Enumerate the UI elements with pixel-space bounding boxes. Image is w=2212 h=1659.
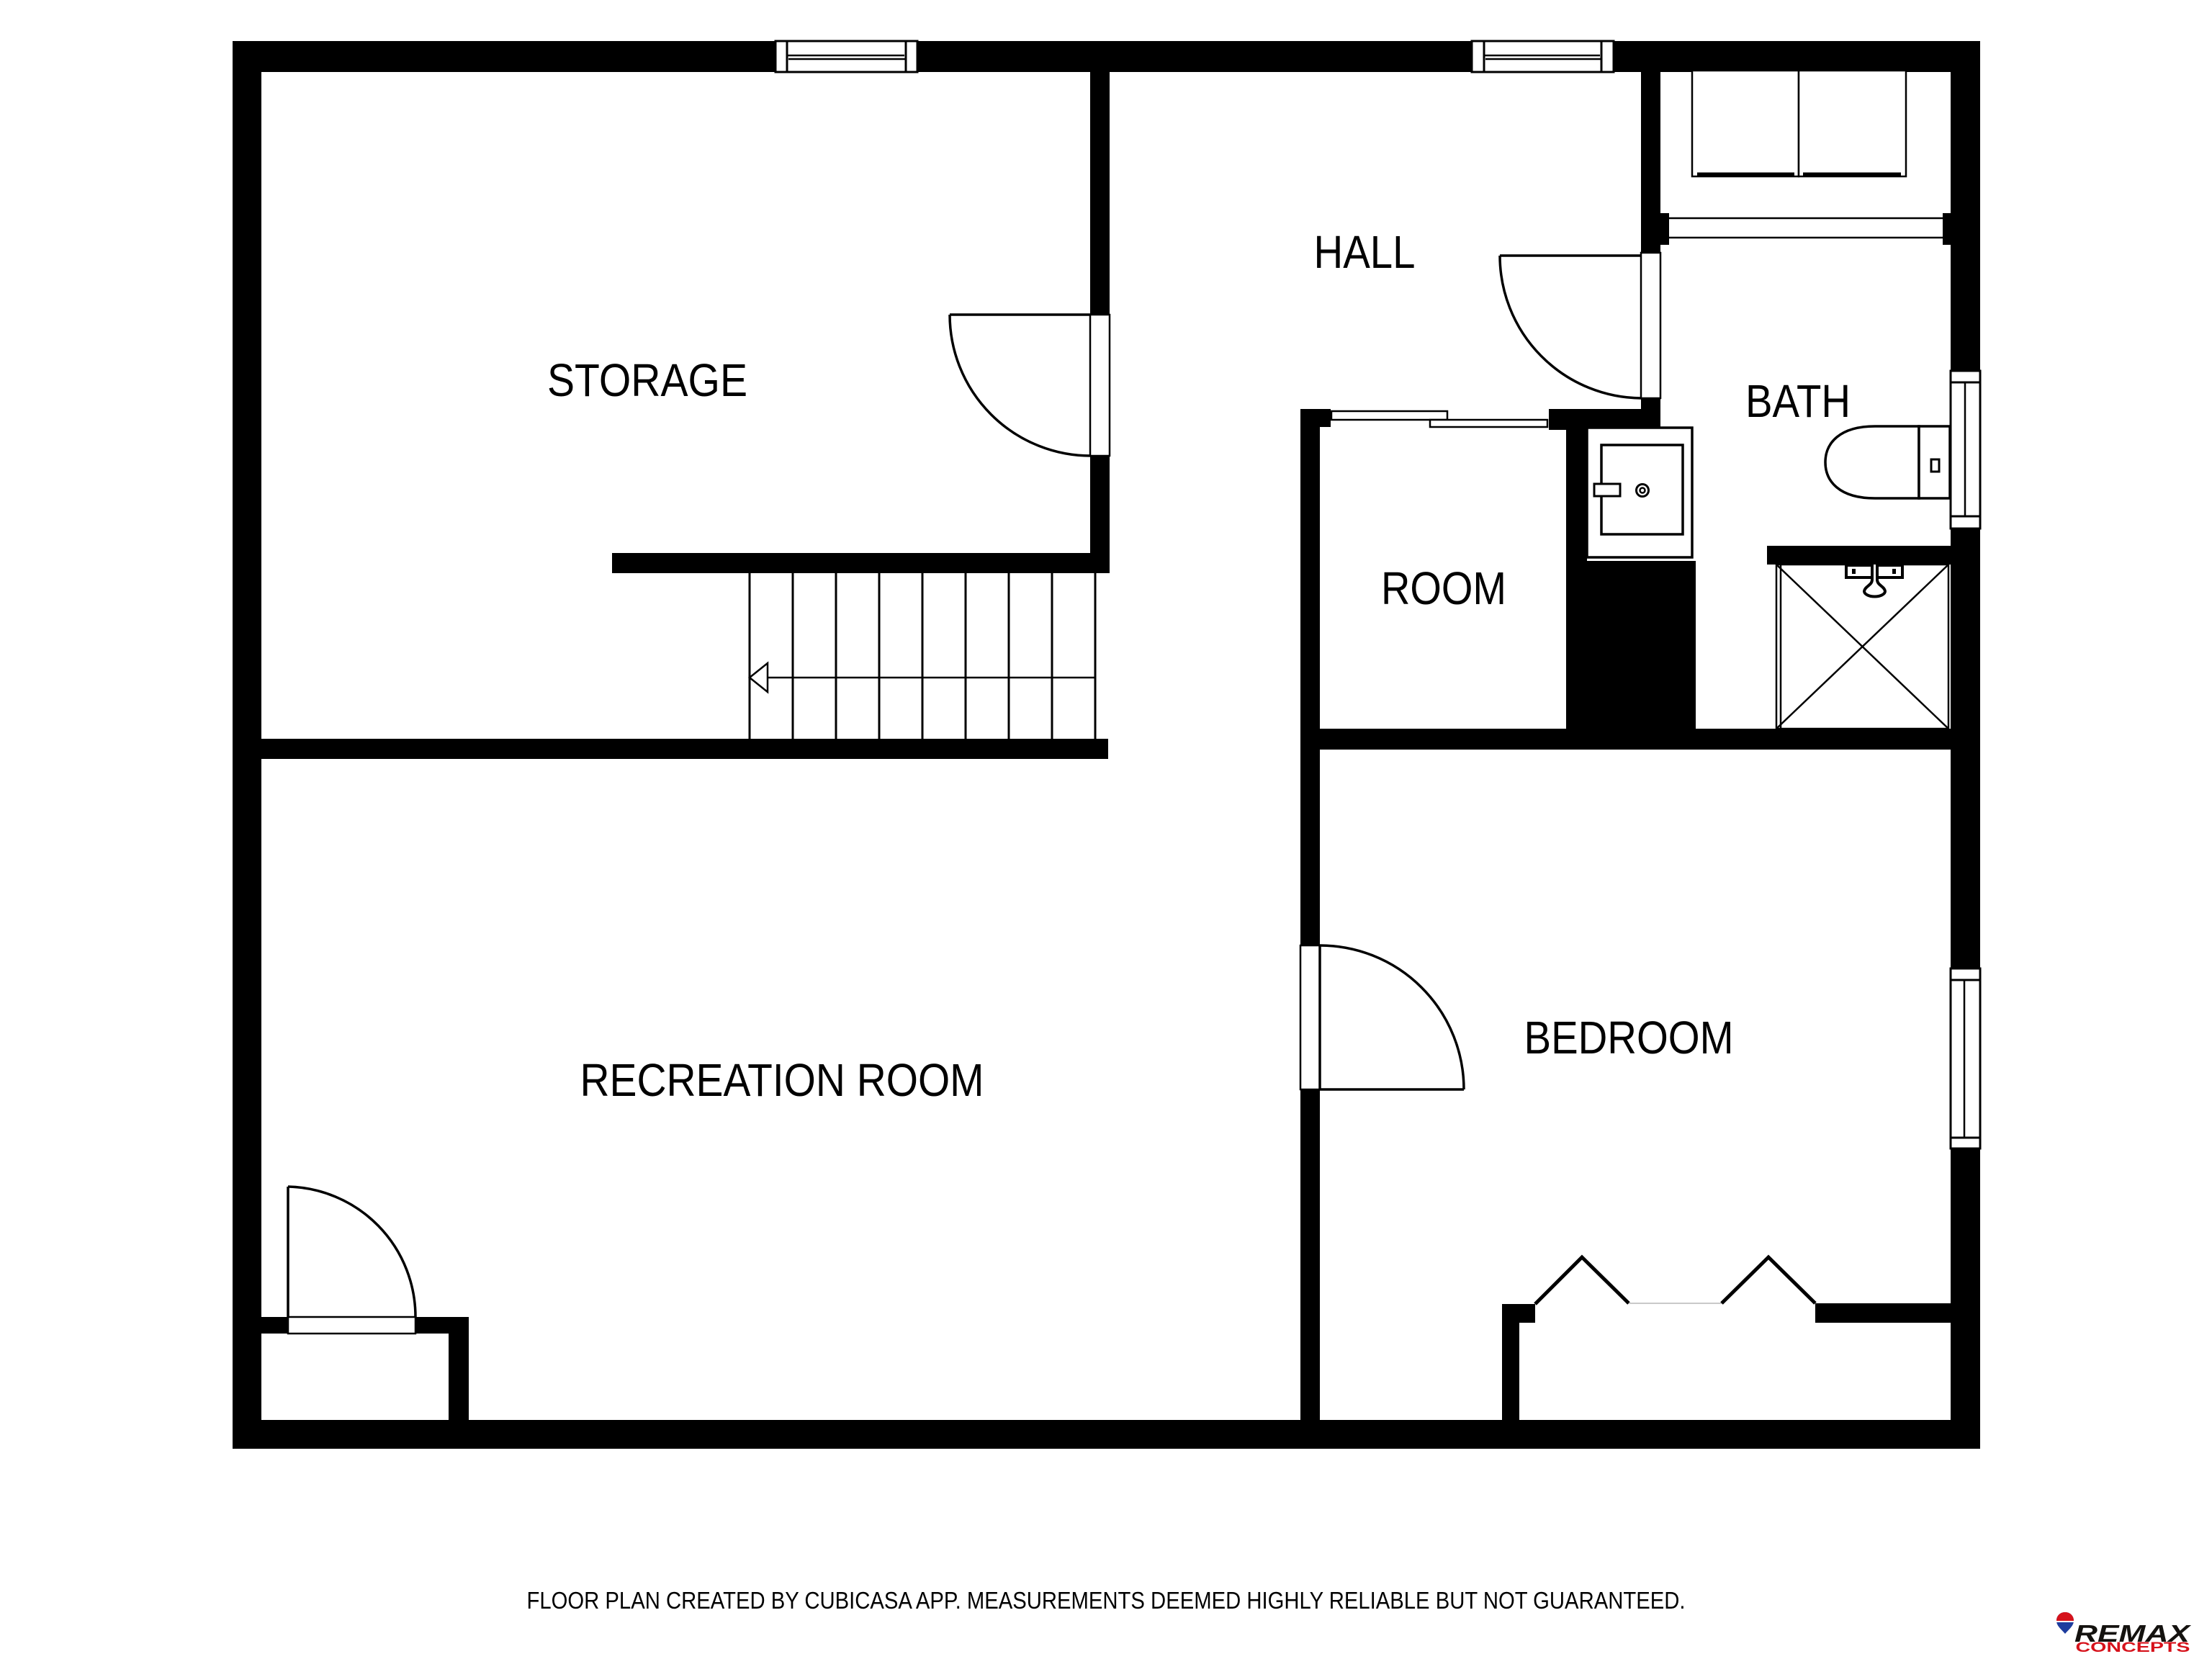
svg-text:CONCEPTS: CONCEPTS bbox=[2076, 1640, 2190, 1655]
svg-text:BATH: BATH bbox=[1745, 375, 1851, 427]
svg-text:HALL: HALL bbox=[1314, 226, 1416, 278]
svg-text:FLOOR PLAN CREATED BY CUBICASA: FLOOR PLAN CREATED BY CUBICASA APP. MEAS… bbox=[527, 1587, 1686, 1614]
svg-text:STORAGE: STORAGE bbox=[547, 354, 747, 406]
svg-text:ROOM: ROOM bbox=[1381, 562, 1506, 614]
svg-text:RECREATION ROOM: RECREATION ROOM bbox=[580, 1054, 984, 1106]
svg-text:BEDROOM: BEDROOM bbox=[1524, 1012, 1734, 1064]
